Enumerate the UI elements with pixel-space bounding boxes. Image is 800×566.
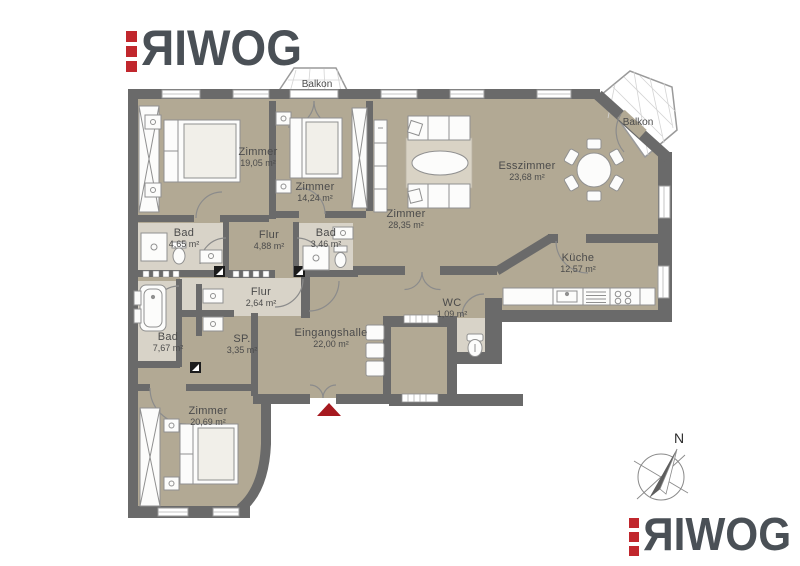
room-area: 3,46 m²	[311, 239, 342, 249]
logo-wordmark: RIWOG	[141, 24, 302, 72]
logo-rest-letters: IWOG	[174, 20, 302, 76]
room-name: Eingangshalle	[294, 327, 367, 339]
room-name: Küche	[560, 252, 596, 264]
room-area: 4,65 m²	[169, 239, 200, 249]
room-name: WC	[437, 297, 468, 309]
room-name: Bad	[311, 227, 342, 239]
room-label-sp: SP. 3,35 m²	[227, 333, 258, 355]
room-label-zimmer-3: Zimmer 28,35 m²	[386, 208, 425, 230]
room-label-kueche: Küche 12,57 m²	[560, 252, 596, 274]
room-label-zimmer-1: Zimmer 19,05 m²	[238, 146, 277, 168]
room-name: Zimmer	[188, 405, 227, 417]
room-name: Zimmer	[295, 181, 334, 193]
wc-toilet	[467, 334, 483, 357]
riwog-logo-top: RIWOG	[126, 24, 316, 72]
shelf-room3	[374, 120, 387, 212]
kitchen-counter	[503, 288, 655, 305]
room-name: SP.	[227, 333, 258, 345]
room-label-eingangshalle: Eingangshalle 22,00 m²	[294, 327, 367, 349]
room-label-bad-2: Bad 3,46 m²	[311, 227, 342, 249]
hall-closets	[366, 325, 384, 376]
logo-wordmark: RIWOG	[643, 512, 791, 556]
floor-plan-page: Zimmer 19,05 m² Zimmer 14,24 m² Zimmer 2…	[0, 0, 800, 566]
apartment-floor-plan	[0, 0, 800, 566]
logo-mirrored-r: R	[141, 24, 174, 72]
room-area: 3,35 m²	[227, 345, 258, 355]
room-area: 28,35 m²	[386, 220, 425, 230]
room-name: Bad	[169, 227, 200, 239]
room-area: 19,05 m²	[238, 158, 277, 168]
wardrobe-room2	[352, 108, 367, 208]
logo-red-squares-icon	[629, 518, 639, 556]
room-label-bad-1: Bad 4,65 m²	[169, 227, 200, 249]
room-area: 14,24 m²	[295, 193, 334, 203]
compass	[634, 449, 688, 500]
room-label-zimmer-2: Zimmer 14,24 m²	[295, 181, 334, 203]
room-area: 4,88 m²	[254, 241, 285, 251]
room-area: 12,57 m²	[560, 264, 596, 274]
riwog-logo-bottom: RIWOG	[629, 512, 800, 556]
room-area: 2,64 m²	[246, 298, 277, 308]
compass-north-label: N	[674, 431, 684, 445]
wardrobe-room4	[140, 408, 160, 506]
balcony-northeast-label: Balkon	[623, 117, 654, 128]
entry-arrow	[317, 403, 341, 416]
room-name: Flur	[254, 229, 285, 241]
balcony-top-label: Balkon	[302, 79, 333, 90]
logo-rest-letters: IWOG	[674, 508, 792, 560]
room-area: 22,00 m²	[294, 339, 367, 349]
room-area: 7,67 m²	[151, 343, 185, 353]
logo-red-squares-icon	[126, 31, 137, 72]
room-label-flur-1: Flur 4,88 m²	[254, 229, 285, 251]
room-label-wc: WC 1,09 m²	[437, 297, 468, 319]
room-area: 1,09 m²	[437, 309, 468, 319]
room-name: Flur	[246, 286, 277, 298]
room-area: 20,69 m²	[188, 417, 227, 427]
room-area: 23,68 m²	[498, 172, 555, 182]
room-label-esszimmer: Esszimmer 23,68 m²	[498, 160, 555, 182]
room-name: Zimmer	[386, 208, 425, 220]
sofa-set-room3	[406, 116, 472, 208]
room-label-zimmer-4: Zimmer 20,69 m²	[188, 405, 227, 427]
room-name: Esszimmer	[498, 160, 555, 172]
room-name: Zimmer	[238, 146, 277, 158]
room-name: Bad	[151, 331, 185, 343]
room-label-bad-3: Bad 7,67 m²	[151, 331, 185, 353]
room-label-flur-2: Flur 2,64 m²	[246, 286, 277, 308]
logo-mirrored-r: R	[643, 512, 674, 556]
